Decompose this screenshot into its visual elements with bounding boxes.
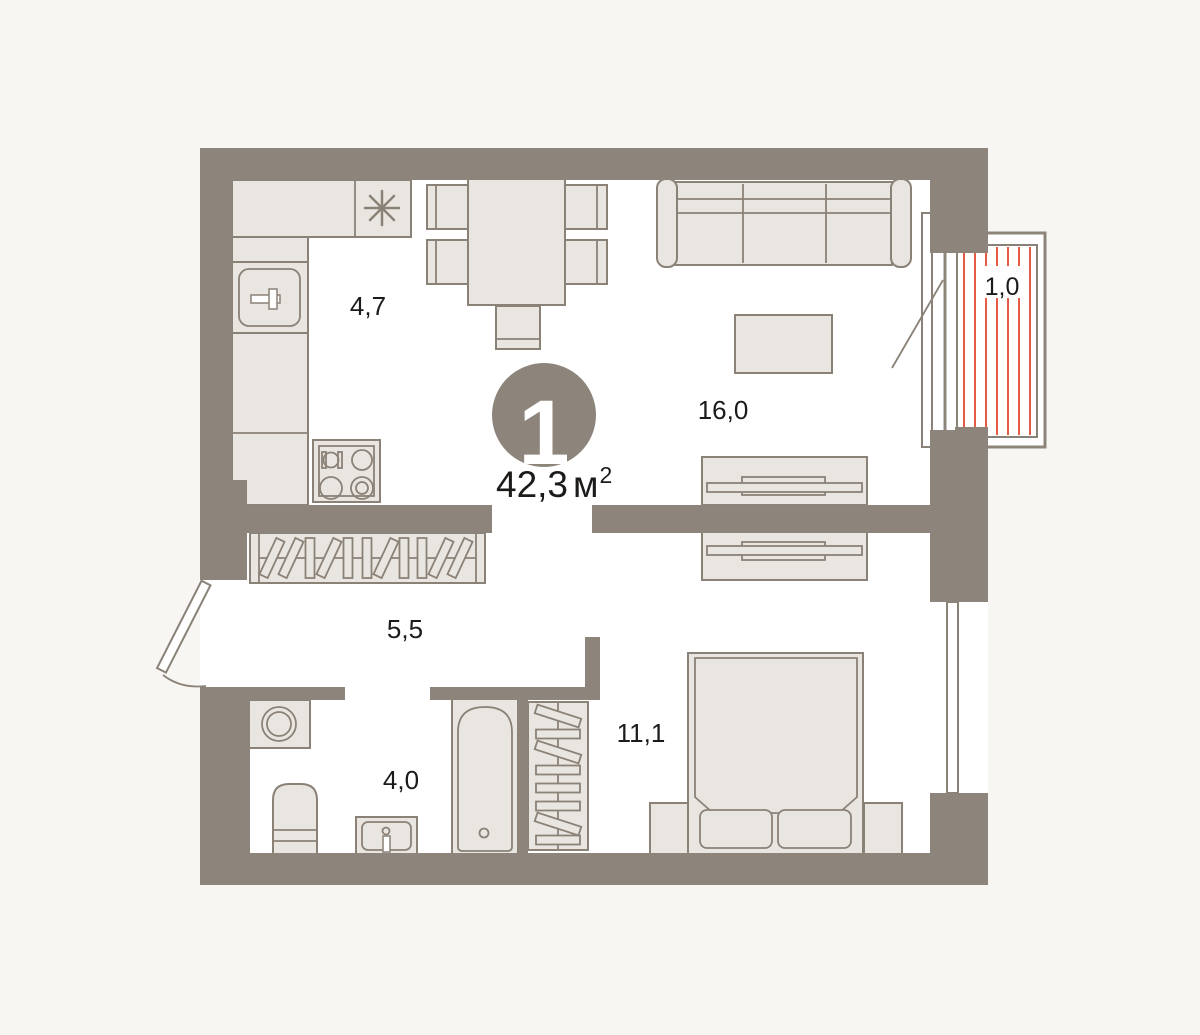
toilet-icon	[273, 784, 317, 854]
door-swing-arc	[163, 675, 206, 687]
hallway-wardrobe	[250, 533, 485, 583]
room-label-living-room: 16,0	[698, 395, 749, 425]
sofa	[657, 179, 911, 267]
washing-machine-icon	[249, 700, 310, 748]
room-label-balcony: 1,0	[985, 273, 1020, 301]
room-label-kitchen: 4,7	[350, 291, 386, 321]
room-label-hallway: 5,5	[387, 614, 423, 644]
tv-console	[702, 457, 867, 505]
room-label-bathroom: 4,0	[383, 765, 419, 795]
room-label-bedroom: 11,1	[617, 718, 666, 748]
coffee-table	[735, 315, 832, 373]
total-area: 42,3м2	[496, 462, 612, 505]
pillow	[778, 810, 851, 848]
bedroom-closet	[528, 702, 588, 850]
stove-icon	[313, 440, 380, 502]
bathroom-sink-icon	[356, 817, 417, 855]
floor-plan: 4,7 16,0 5,5 4,0 11,1 1,0 1 42,3м2	[0, 0, 1200, 1035]
bedroom-dresser	[702, 532, 867, 580]
blanket	[695, 658, 857, 813]
kitchen-sink-icon	[232, 262, 308, 333]
bed	[688, 653, 863, 855]
bedroom-window	[947, 602, 958, 793]
floor-plan-canvas: 4,7 16,0 5,5 4,0 11,1 1,0 1 42,3м2	[0, 0, 1200, 1035]
bathtub-icon	[452, 698, 518, 856]
fridge-asterisk-icon	[365, 191, 399, 225]
balcony	[945, 233, 1045, 447]
dining-table	[468, 178, 565, 305]
pillow	[700, 810, 772, 848]
